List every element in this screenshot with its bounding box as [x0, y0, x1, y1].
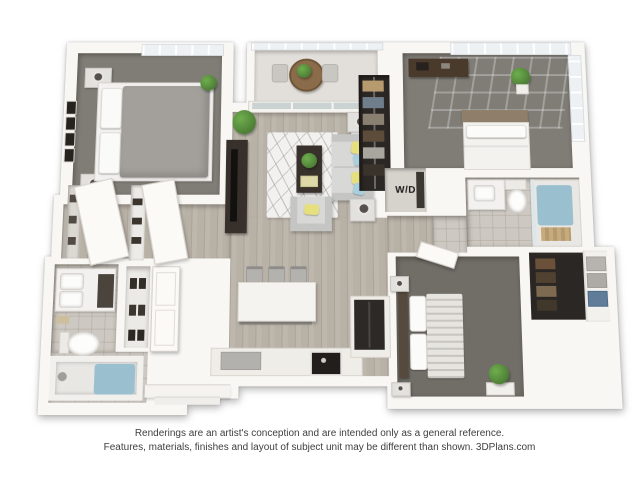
armchair-pillow [304, 204, 320, 216]
wall-art-frame [66, 101, 77, 115]
toilet-bowl [507, 189, 528, 213]
bed3-striped-duvet [426, 294, 464, 378]
coffee-table-book [300, 176, 318, 187]
bar-stool [246, 266, 263, 283]
tub-water [536, 185, 573, 225]
stove-burner [321, 358, 326, 363]
hanging-clothes [363, 147, 385, 158]
armchair-armrest [290, 197, 297, 232]
shoes [128, 330, 135, 341]
entry-step-lower [154, 397, 220, 405]
hanging-clothes [536, 286, 556, 297]
bed3-headboard [398, 292, 408, 378]
bathroom1-sink [60, 273, 85, 290]
linen-item [68, 237, 76, 245]
bar-stool [290, 266, 307, 283]
bed2-pillows [466, 125, 527, 138]
closet-item [131, 237, 141, 244]
shoes [137, 330, 144, 341]
hanging-clothes [363, 97, 384, 108]
tv [230, 149, 238, 221]
soap-tray [56, 316, 69, 324]
hanging-clothes [537, 300, 558, 311]
sliding-door-pane [252, 103, 291, 109]
washer-dryer-label: W/D [395, 185, 416, 195]
linen-item [69, 216, 77, 224]
balcony-glass-railing [251, 42, 383, 50]
wall-art-frame [63, 148, 74, 162]
bath-mat [541, 227, 571, 241]
storage-basket [586, 256, 607, 271]
shoes [139, 278, 146, 289]
bed1-pillow [98, 132, 121, 173]
plant-pot [516, 84, 529, 94]
hanging-clothes [363, 130, 385, 141]
stove [310, 351, 343, 376]
closet-item [133, 199, 143, 206]
bed2-headboard [462, 110, 528, 122]
vanity-cabinet [97, 274, 114, 308]
floorplan-3d-rendering: W/D [0, 17, 639, 427]
floorplan-scene: W/D [0, 17, 639, 427]
bed2-fold-line [463, 145, 527, 147]
shoes [130, 278, 137, 289]
bedroom2-window-north [450, 42, 571, 55]
patio-chair [322, 64, 338, 82]
table-lamp [395, 279, 404, 288]
hanging-clothes [363, 164, 385, 175]
dryer-unit [416, 172, 425, 208]
bathroom2-sink [473, 185, 495, 201]
patio-table-plant [297, 64, 311, 78]
bar-stool [268, 266, 285, 283]
hanging-clothes [363, 114, 384, 125]
bedroom1-window [141, 44, 224, 56]
side-table-lamp [357, 202, 370, 214]
desk-accessory [441, 63, 450, 68]
laptop [416, 62, 429, 70]
hanging-clothes [362, 81, 383, 92]
hanging-clothes [536, 272, 556, 283]
table-lamp [396, 384, 404, 392]
wall-art-frame [65, 117, 76, 131]
patio-chair [272, 64, 289, 82]
shoes [129, 305, 136, 316]
storage-basket-blue [587, 291, 608, 307]
storage-basket [587, 273, 608, 288]
bed1-pillow [100, 88, 123, 129]
disclaimer-line2: Features, materials, finishes and layout… [0, 441, 639, 455]
bathroom1-sink [59, 291, 84, 308]
sliding-door-pane [293, 103, 332, 109]
bed3-pillow [409, 296, 427, 332]
refrigerator-handle [368, 302, 370, 348]
kitchen-island [237, 282, 316, 322]
door-panel-inset [154, 310, 175, 346]
coffee-table-plant [301, 153, 317, 168]
armchair-armrest [325, 197, 332, 232]
kitchen-sink [220, 352, 261, 370]
bed3-pillow [410, 334, 428, 370]
tub-mat-blue [94, 364, 136, 395]
disclaimer-line1: Renderings are an artist's conception an… [0, 427, 639, 441]
hanging-clothes [535, 258, 555, 269]
potted-plant [488, 364, 509, 384]
bed1-duvet [120, 86, 210, 177]
disclaimer: Renderings are an artist's conception an… [0, 427, 639, 455]
wall-art-frame [64, 132, 75, 146]
door-panel-inset [155, 272, 176, 306]
shoes [138, 305, 145, 316]
closet-item [132, 218, 142, 225]
